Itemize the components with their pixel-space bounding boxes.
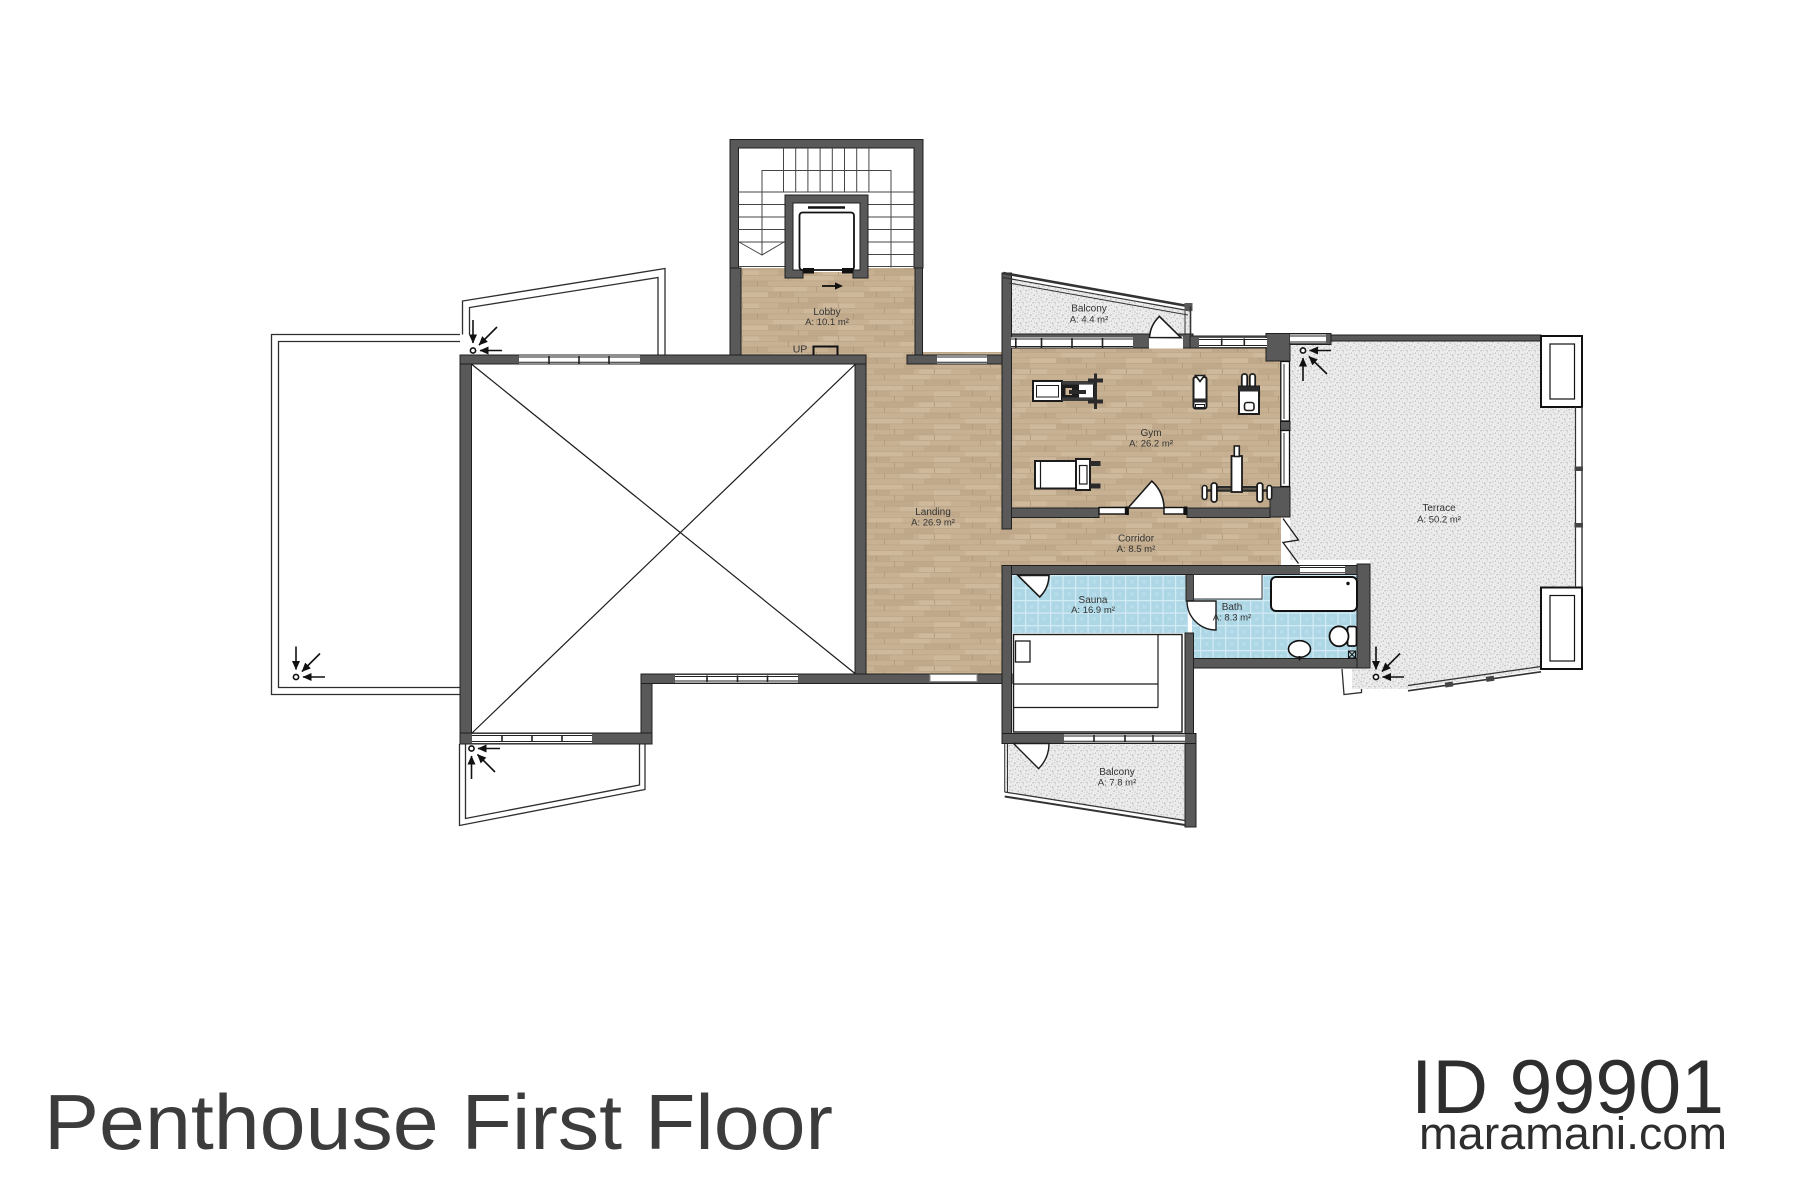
svg-text:A: 7.8 m²: A: 7.8 m²	[1098, 778, 1137, 789]
svg-text:Penthouse First Floor: Penthouse First Floor	[44, 1078, 833, 1166]
svg-text:A: 4.4 m²: A: 4.4 m²	[1070, 315, 1109, 326]
svg-text:A: 26.9 m²: A: 26.9 m²	[911, 518, 955, 529]
svg-text:Gym: Gym	[1140, 428, 1161, 439]
svg-text:A: 8.3 m²: A: 8.3 m²	[1213, 613, 1252, 624]
svg-text:A: 26.2 m²: A: 26.2 m²	[1129, 439, 1173, 450]
svg-text:Bath: Bath	[1222, 602, 1243, 613]
svg-text:A: 50.2 m²: A: 50.2 m²	[1417, 515, 1461, 526]
svg-text:A: 16.9 m²: A: 16.9 m²	[1071, 605, 1115, 616]
svg-text:Corridor: Corridor	[1118, 534, 1155, 545]
svg-text:Terrace: Terrace	[1422, 503, 1456, 514]
svg-text:Landing: Landing	[915, 507, 951, 518]
svg-text:UP: UP	[793, 344, 808, 356]
svg-text:A: 10.1 m²: A: 10.1 m²	[805, 317, 849, 328]
svg-text:Balcony: Balcony	[1099, 767, 1135, 778]
svg-text:maramani.com: maramani.com	[1419, 1108, 1727, 1159]
svg-text:A: 8.5 m²: A: 8.5 m²	[1117, 544, 1156, 555]
svg-text:Balcony: Balcony	[1071, 304, 1107, 315]
